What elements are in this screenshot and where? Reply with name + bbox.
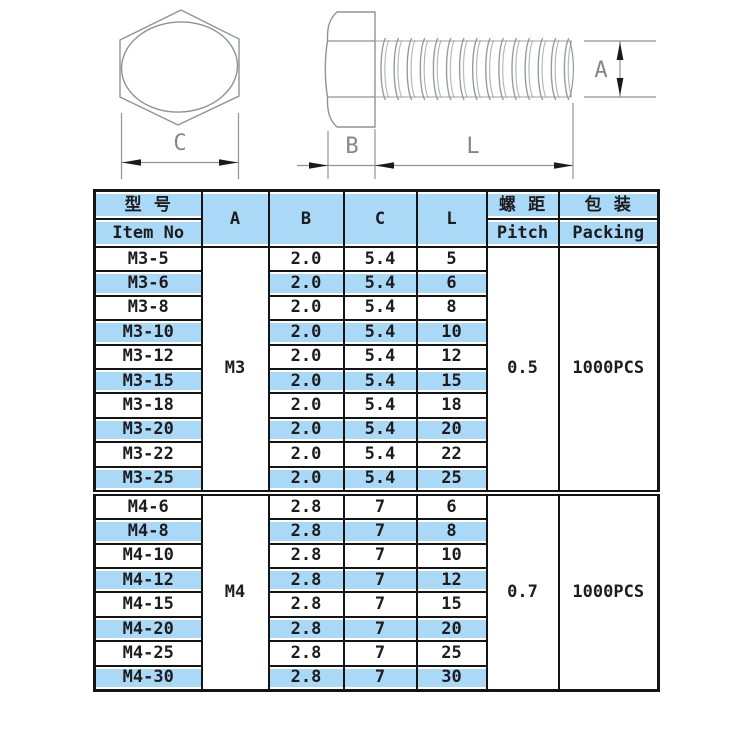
- c-cell: 7: [344, 493, 417, 519]
- l-cell: 10: [417, 320, 487, 344]
- l-cell: 10: [417, 544, 487, 568]
- arrow-left-icon: [122, 159, 141, 166]
- table-row: M3-5 M3 2.0 5.4 5 0.5 1000PCS: [95, 247, 659, 271]
- c-cell: 7: [344, 592, 417, 616]
- l-cell: 15: [417, 592, 487, 616]
- b-cell: 2.8: [269, 493, 344, 519]
- spec-sheet: C A: [0, 0, 750, 750]
- c-cell: 5.4: [344, 345, 417, 369]
- b-cell: 2.0: [269, 247, 344, 271]
- item-cell: M3-5: [95, 247, 202, 271]
- col-header-pitch-cn: 螺 距: [487, 191, 559, 220]
- b-cell: 2.8: [269, 641, 344, 665]
- c-cell: 7: [344, 666, 417, 691]
- b-cell: 2.0: [269, 442, 344, 466]
- spec-table: 型 号 A B C L 螺 距 包 装 Item No Pitch Packin…: [93, 189, 660, 692]
- c-cell: 5.4: [344, 442, 417, 466]
- pitch-merged-cell: 0.5: [487, 247, 559, 493]
- arrow-down-icon: [617, 78, 624, 96]
- l-cell: 18: [417, 393, 487, 417]
- b-cell: 2.8: [269, 592, 344, 616]
- b-cell: 2.0: [269, 369, 344, 393]
- col-header-packing-cn: 包 装: [559, 191, 659, 220]
- col-header-item-en: Item No: [95, 219, 202, 247]
- c-cell: 5.4: [344, 369, 417, 393]
- c-cell: 5.4: [344, 247, 417, 271]
- packing-merged-cell: 1000PCS: [559, 493, 659, 691]
- c-cell: 5.4: [344, 296, 417, 320]
- b-cell: 2.0: [269, 467, 344, 493]
- head-circle: [119, 19, 240, 115]
- arrow-up-icon: [617, 42, 624, 60]
- col-header-b: B: [269, 191, 344, 248]
- b-cell: 2.8: [269, 568, 344, 592]
- item-cell: M3-15: [95, 369, 202, 393]
- b-cell: 2.8: [269, 617, 344, 641]
- l-cell: 25: [417, 467, 487, 493]
- l-cell: 30: [417, 666, 487, 691]
- item-cell: M3-22: [95, 442, 202, 466]
- threaded-shank: [375, 37, 573, 101]
- c-cell: 5.4: [344, 418, 417, 442]
- table-row: M4-6 M4 2.8 7 6 0.7 1000PCS: [95, 493, 659, 519]
- dimension-c: C: [122, 113, 239, 179]
- l-cell: 6: [417, 271, 487, 295]
- hex-head-front-view: C: [119, 10, 240, 179]
- item-cell: M4-8: [95, 519, 202, 543]
- dimension-a: A: [584, 41, 656, 97]
- header-row-cn: 型 号 A B C L 螺 距 包 装: [95, 191, 659, 220]
- l-cell: 15: [417, 369, 487, 393]
- col-header-pitch-en: Pitch: [487, 219, 559, 247]
- c-cell: 7: [344, 641, 417, 665]
- arrow-right-icon: [554, 162, 573, 169]
- col-header-packing-en: Packing: [559, 219, 659, 247]
- bolt-side-view: A B L: [297, 12, 656, 179]
- col-header-l: L: [417, 191, 487, 248]
- head-outline: [325, 12, 375, 127]
- arrow-right-icon: [219, 159, 238, 166]
- item-cell: M4-20: [95, 617, 202, 641]
- pitch-merged-cell: 0.7: [487, 493, 559, 691]
- col-header-a: A: [202, 191, 269, 248]
- l-cell: 12: [417, 345, 487, 369]
- b-cell: 2.0: [269, 393, 344, 417]
- b-cell: 2.0: [269, 296, 344, 320]
- c-cell: 5.4: [344, 320, 417, 344]
- dim-label-l: L: [466, 134, 479, 159]
- c-cell: 7: [344, 617, 417, 641]
- item-cell: M4-6: [95, 493, 202, 519]
- a-merged-cell: M4: [202, 493, 269, 691]
- item-cell: M3-18: [95, 393, 202, 417]
- item-cell: M3-25: [95, 467, 202, 493]
- item-cell: M4-10: [95, 544, 202, 568]
- l-cell: 22: [417, 442, 487, 466]
- item-cell: M3-20: [95, 418, 202, 442]
- col-header-item-cn: 型 号: [95, 191, 202, 220]
- dim-label-b: B: [345, 134, 358, 159]
- item-cell: M4-25: [95, 641, 202, 665]
- b-cell: 2.8: [269, 544, 344, 568]
- l-cell: 6: [417, 493, 487, 519]
- c-cell: 7: [344, 544, 417, 568]
- c-cell: 7: [344, 519, 417, 543]
- bolt-drawing: C A: [0, 0, 750, 188]
- l-cell: 5: [417, 247, 487, 271]
- item-cell: M3-6: [95, 271, 202, 295]
- item-cell: M4-12: [95, 568, 202, 592]
- b-cell: 2.0: [269, 271, 344, 295]
- dim-label-a: A: [594, 58, 607, 83]
- l-cell: 12: [417, 568, 487, 592]
- c-cell: 7: [344, 568, 417, 592]
- item-cell: M4-30: [95, 666, 202, 691]
- col-header-c: C: [344, 191, 417, 248]
- item-cell: M3-8: [95, 296, 202, 320]
- l-cell: 8: [417, 296, 487, 320]
- b-cell: 2.0: [269, 320, 344, 344]
- arrow-left-icon: [375, 162, 394, 169]
- arrow-right-icon: [309, 162, 328, 169]
- c-cell: 5.4: [344, 393, 417, 417]
- dimension-b-l: B L: [297, 103, 573, 179]
- l-cell: 20: [417, 617, 487, 641]
- c-cell: 5.4: [344, 467, 417, 493]
- b-cell: 2.8: [269, 666, 344, 691]
- a-merged-cell: M3: [202, 247, 269, 493]
- l-cell: 20: [417, 418, 487, 442]
- b-cell: 2.8: [269, 519, 344, 543]
- l-cell: 8: [417, 519, 487, 543]
- item-cell: M3-10: [95, 320, 202, 344]
- packing-merged-cell: 1000PCS: [559, 247, 659, 493]
- b-cell: 2.0: [269, 345, 344, 369]
- item-cell: M4-15: [95, 592, 202, 616]
- b-cell: 2.0: [269, 418, 344, 442]
- dim-label-c: C: [173, 131, 186, 156]
- item-cell: M3-12: [95, 345, 202, 369]
- c-cell: 5.4: [344, 271, 417, 295]
- l-cell: 25: [417, 641, 487, 665]
